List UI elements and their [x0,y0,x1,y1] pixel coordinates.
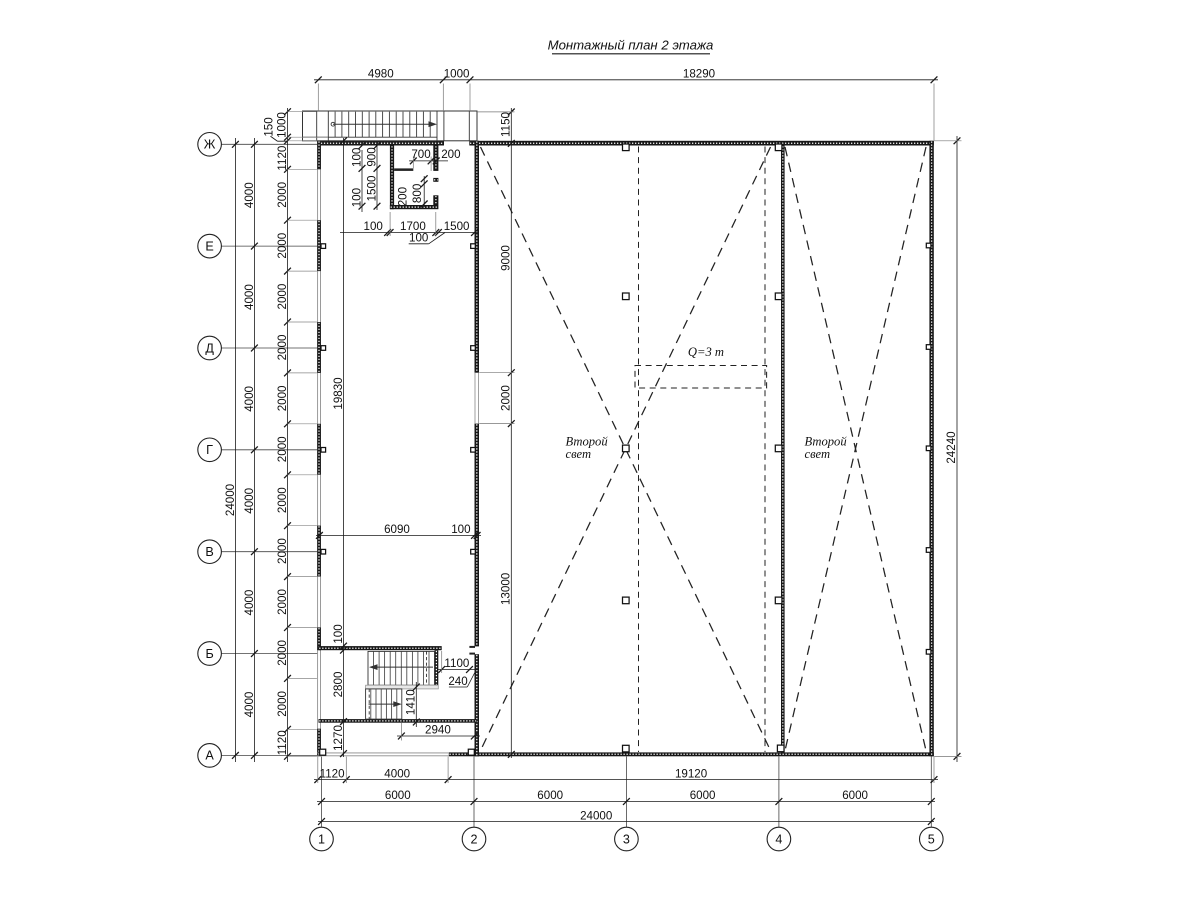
svg-text:2000: 2000 [276,436,289,462]
svg-text:2940: 2940 [425,724,451,737]
svg-text:100: 100 [364,220,383,233]
svg-text:2000: 2000 [276,284,289,310]
svg-text:2000: 2000 [276,538,289,564]
svg-text:свет: свет [566,447,592,461]
svg-text:1500: 1500 [365,176,378,202]
svg-text:Д: Д [205,341,214,355]
svg-text:700: 700 [411,148,430,161]
svg-text:Q=3 т: Q=3 т [688,345,724,359]
svg-text:Б: Б [205,647,213,661]
svg-text:А: А [205,749,214,763]
svg-text:24000: 24000 [580,810,612,823]
svg-text:4000: 4000 [384,767,410,780]
svg-text:100: 100 [409,231,428,244]
svg-text:1150: 1150 [500,112,513,137]
svg-text:1100: 1100 [444,657,469,670]
svg-text:2000: 2000 [500,385,513,411]
svg-text:свет: свет [805,447,831,461]
svg-text:2000: 2000 [276,691,289,717]
svg-text:4980: 4980 [368,68,394,81]
svg-text:2000: 2000 [276,233,289,259]
svg-text:900: 900 [365,147,378,166]
svg-text:1270: 1270 [332,725,345,751]
svg-text:Монтажный план 2 этажа: Монтажный план 2 этажа [548,38,714,53]
svg-text:1120: 1120 [276,146,289,171]
svg-text:4000: 4000 [243,590,256,616]
svg-text:2000: 2000 [276,386,289,412]
svg-text:6090: 6090 [384,523,410,536]
svg-text:1000: 1000 [276,112,289,138]
svg-text:19120: 19120 [675,767,707,780]
svg-text:24000: 24000 [224,484,237,516]
svg-text:1120: 1120 [276,730,289,755]
svg-text:1120: 1120 [320,767,345,780]
svg-text:2000: 2000 [276,335,289,361]
svg-text:6000: 6000 [537,789,563,802]
svg-text:9000: 9000 [500,245,513,271]
svg-text:6000: 6000 [842,789,868,802]
svg-text:3: 3 [623,832,630,846]
svg-text:150: 150 [262,117,275,136]
svg-text:200: 200 [441,148,460,161]
svg-text:100: 100 [332,624,345,643]
svg-text:6000: 6000 [385,789,411,802]
svg-text:2000: 2000 [276,182,289,208]
svg-text:24240: 24240 [945,431,958,463]
svg-text:200: 200 [397,187,410,206]
svg-text:1500: 1500 [444,220,470,233]
svg-text:Г: Г [206,443,213,457]
svg-text:19830: 19830 [332,377,345,409]
svg-text:4000: 4000 [243,488,256,514]
svg-text:Ж: Ж [204,138,216,152]
svg-text:2800: 2800 [332,672,345,698]
svg-text:4000: 4000 [243,284,256,310]
svg-text:4: 4 [775,832,782,846]
svg-text:4000: 4000 [243,182,256,208]
svg-text:100: 100 [350,148,363,167]
svg-text:800: 800 [411,184,424,203]
svg-text:13000: 13000 [500,573,513,605]
svg-text:5: 5 [928,832,935,846]
svg-text:4000: 4000 [243,386,256,412]
svg-text:1000: 1000 [444,68,470,81]
svg-text:1: 1 [318,832,325,846]
svg-text:1410: 1410 [405,689,418,715]
svg-text:100: 100 [451,523,470,536]
svg-text:100: 100 [350,188,363,207]
svg-text:2000: 2000 [276,487,289,513]
svg-text:240: 240 [448,675,467,688]
svg-text:4000: 4000 [243,692,256,718]
svg-text:2: 2 [470,832,477,846]
svg-text:2000: 2000 [276,640,289,666]
svg-text:6000: 6000 [690,789,716,802]
svg-text:Е: Е [205,239,213,253]
svg-text:2000: 2000 [276,589,289,615]
svg-text:18290: 18290 [683,68,715,81]
svg-text:В: В [205,545,213,559]
